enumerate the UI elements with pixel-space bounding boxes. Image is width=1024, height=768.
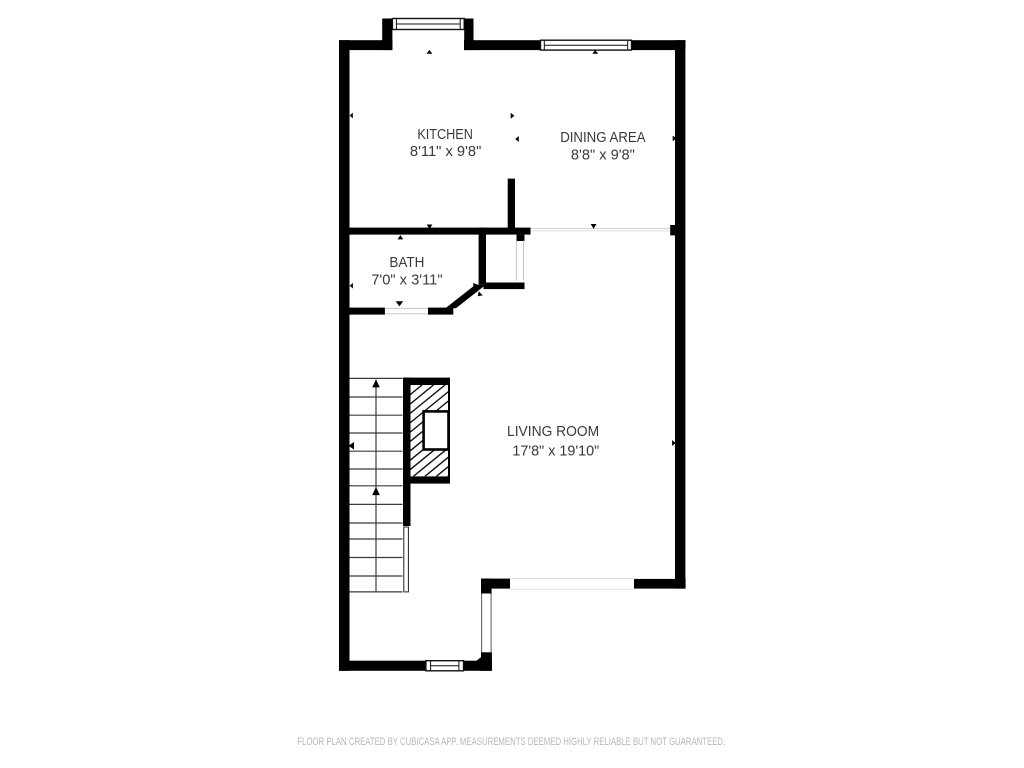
svg-text:DINING AREA: DINING AREA — [560, 130, 646, 146]
svg-text:KITCHEN: KITCHEN — [417, 127, 473, 143]
svg-text:BATH: BATH — [389, 255, 424, 271]
svg-text:8'8" x 9'8": 8'8" x 9'8" — [571, 148, 635, 164]
svg-text:7'0" x 3'11": 7'0" x 3'11" — [371, 273, 442, 289]
svg-text:17'8" x 19'10": 17'8" x 19'10" — [512, 444, 599, 460]
svg-text:8'11" x 9'8": 8'11" x 9'8" — [410, 144, 481, 160]
svg-text:LIVING ROOM: LIVING ROOM — [507, 424, 599, 440]
svg-text:FLOOR PLAN CREATED BY CUBICASA: FLOOR PLAN CREATED BY CUBICASA APP. MEAS… — [297, 736, 725, 748]
